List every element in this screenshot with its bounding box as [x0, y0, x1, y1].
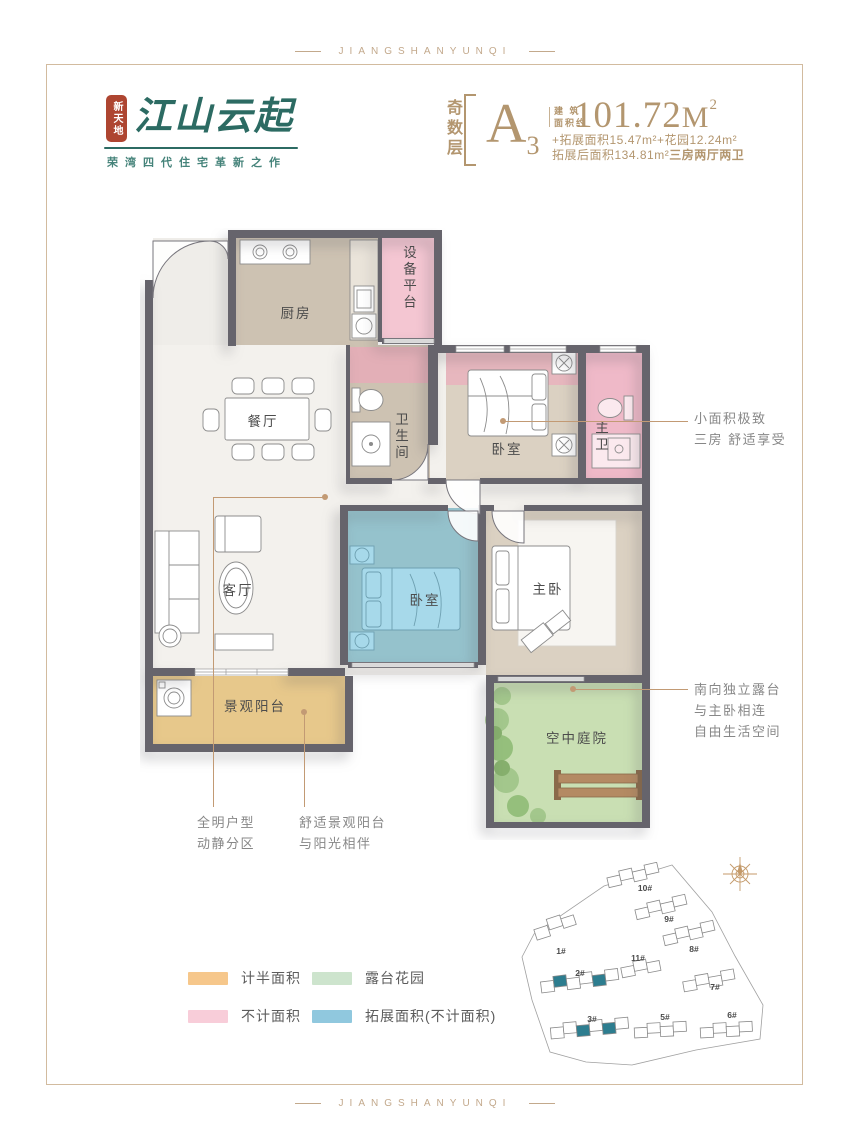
legend-swatch-extension [312, 1010, 352, 1023]
bracket-left [464, 94, 476, 166]
unit-number: 3 [526, 131, 539, 160]
building-label-3: 3# [587, 1014, 597, 1024]
room-label-balcony: 景观阳台 [224, 695, 286, 715]
dash-right [529, 51, 555, 52]
legend-label: 露台花园 [365, 968, 425, 988]
annotation-line [575, 689, 688, 690]
building-label-8: 8# [689, 944, 699, 954]
bathroom-pink-strip [350, 347, 430, 383]
building-label-2: 2# [575, 968, 585, 978]
room-label-bedroom-extension: 卧室 [410, 589, 441, 609]
dining-chair [203, 409, 219, 431]
dash-left [295, 1103, 321, 1104]
legend-label: 拓展面积(不计面积) [365, 1006, 496, 1026]
legend-item: 计半面积 [188, 968, 301, 988]
stool [159, 625, 181, 647]
room-label-living: 客厅 [223, 579, 254, 599]
spec-detail-2-bold: 三房两厅两卫 [669, 148, 744, 162]
border-label-bottom-text: JIANGSHANYUNQI [339, 1098, 512, 1109]
legend-swatch-half-area [188, 972, 228, 985]
annotation-line-text: 自由生活空间 [694, 721, 781, 742]
dining-chair [292, 378, 314, 394]
annotation-line-text: 南向独立露台 [694, 679, 781, 700]
dining-chair [232, 378, 254, 394]
spec-detail-2-normal: 拓展后面积134.81m² [552, 148, 669, 162]
washer-icon [157, 680, 191, 716]
floorplan-page: JIANGSHANYUNQI JIANGSHANYUNQI 新天地 江山云起 荣… [0, 0, 850, 1148]
brand-logo: 江山云起 [134, 90, 304, 142]
unit-name: A3 [486, 97, 539, 173]
dining-chair [262, 444, 284, 460]
room-label-master-bedroom: 主卧 [533, 578, 564, 598]
border-label-bottom: JIANGSHANYUNQI [0, 1098, 850, 1109]
room-label-bathroom: 卫生间 [390, 412, 410, 462]
border-label-top: JIANGSHANYUNQI [0, 46, 850, 57]
stove-icon [240, 240, 310, 264]
building-5 [634, 1021, 687, 1038]
floorplan-drawing [140, 228, 665, 840]
dining-chair [292, 444, 314, 460]
tv-console [215, 634, 273, 650]
building-1 [532, 911, 577, 940]
building-6 [700, 1021, 753, 1038]
building-label-1: 1# [556, 946, 566, 956]
dining-chair [232, 444, 254, 460]
building-label-11: 11# [631, 953, 645, 963]
annotation-line-text: 与阳光相伴 [299, 833, 386, 854]
building-7 [682, 969, 736, 992]
legend-item: 拓展面积(不计面积) [312, 1006, 496, 1026]
lounge-chair [215, 516, 261, 552]
legend-label: 不计面积 [241, 1006, 301, 1026]
legend-item: 露台花园 [312, 968, 425, 988]
legend-label: 计半面积 [241, 968, 301, 988]
legend-swatch-terrace-garden [312, 972, 352, 985]
spec-divider [549, 107, 550, 127]
dash-right [529, 1103, 555, 1104]
annotation-line-text: 动静分区 [197, 833, 255, 854]
annotation-line [213, 497, 325, 498]
annotation-line-text: 三房 舒适享受 [694, 429, 786, 450]
unit-letter: A [486, 93, 526, 155]
building-label-10: 10# [638, 883, 652, 893]
annotation-line-text: 全明户型 [197, 812, 255, 833]
floor-tag: 奇数层 [440, 99, 464, 159]
annotation-line [505, 421, 688, 422]
dining-chair [315, 409, 331, 431]
spec-detail-2: 拓展后面积134.81m²三房两厅两卫 [552, 146, 744, 163]
area-number: 101.72 [574, 95, 682, 136]
compass-icon [722, 856, 758, 892]
room-label-dining: 餐厅 [248, 410, 279, 430]
brand-seal: 新天地 [106, 95, 127, 142]
building-label-9: 9# [664, 914, 674, 924]
room-label-kitchen: 厨房 [281, 302, 312, 322]
legend-swatch-not-counted [188, 1010, 228, 1023]
annotation-bottom-left-1: 全明户型 动静分区 [197, 812, 255, 854]
annotation-dot [322, 494, 328, 500]
building-label-7: 7# [710, 982, 720, 992]
border-label-top-text: JIANGSHANYUNQI [339, 46, 512, 57]
annotation-line-text: 与主卧相连 [694, 700, 781, 721]
building-8 [662, 920, 716, 945]
siteplan: 1# 2# 3# 5# 6# 7# 8# 9# 10# 11# [504, 862, 794, 1090]
sofa-icon [155, 531, 199, 633]
building-label-6: 6# [727, 1010, 737, 1020]
building-9 [634, 894, 688, 919]
annotation-line-text: 小面积极致 [694, 408, 786, 429]
annotation-line-text: 舒适景观阳台 [299, 812, 386, 833]
annotation-bottom-left-2: 舒适景观阳台 与阳光相伴 [299, 812, 386, 854]
brand-tagline: 荣湾四代住宅革新之作 [107, 154, 287, 170]
dash-left [295, 51, 321, 52]
legend-item: 不计面积 [188, 1006, 301, 1026]
building-label-5: 5# [660, 1012, 670, 1022]
toilet-icon [598, 399, 622, 418]
dining-chair [262, 378, 284, 394]
area-unit: M [682, 101, 710, 134]
room-label-bedroom-top: 卧室 [492, 438, 523, 458]
room-label-courtyard: 空中庭院 [546, 727, 608, 747]
room-label-master-bathroom: 主卫 [590, 421, 610, 454]
annotation-line [304, 712, 305, 807]
annotation-line [213, 497, 214, 807]
annotation-right-top: 小面积极致 三房 舒适享受 [694, 408, 786, 450]
logo-divider [104, 147, 298, 149]
room-label-equipment-platform: 设备平台 [398, 245, 418, 311]
area-superscript: 2 [709, 97, 718, 113]
annotation-right-bottom: 南向独立露台 与主卧相连 自由生活空间 [694, 679, 781, 742]
